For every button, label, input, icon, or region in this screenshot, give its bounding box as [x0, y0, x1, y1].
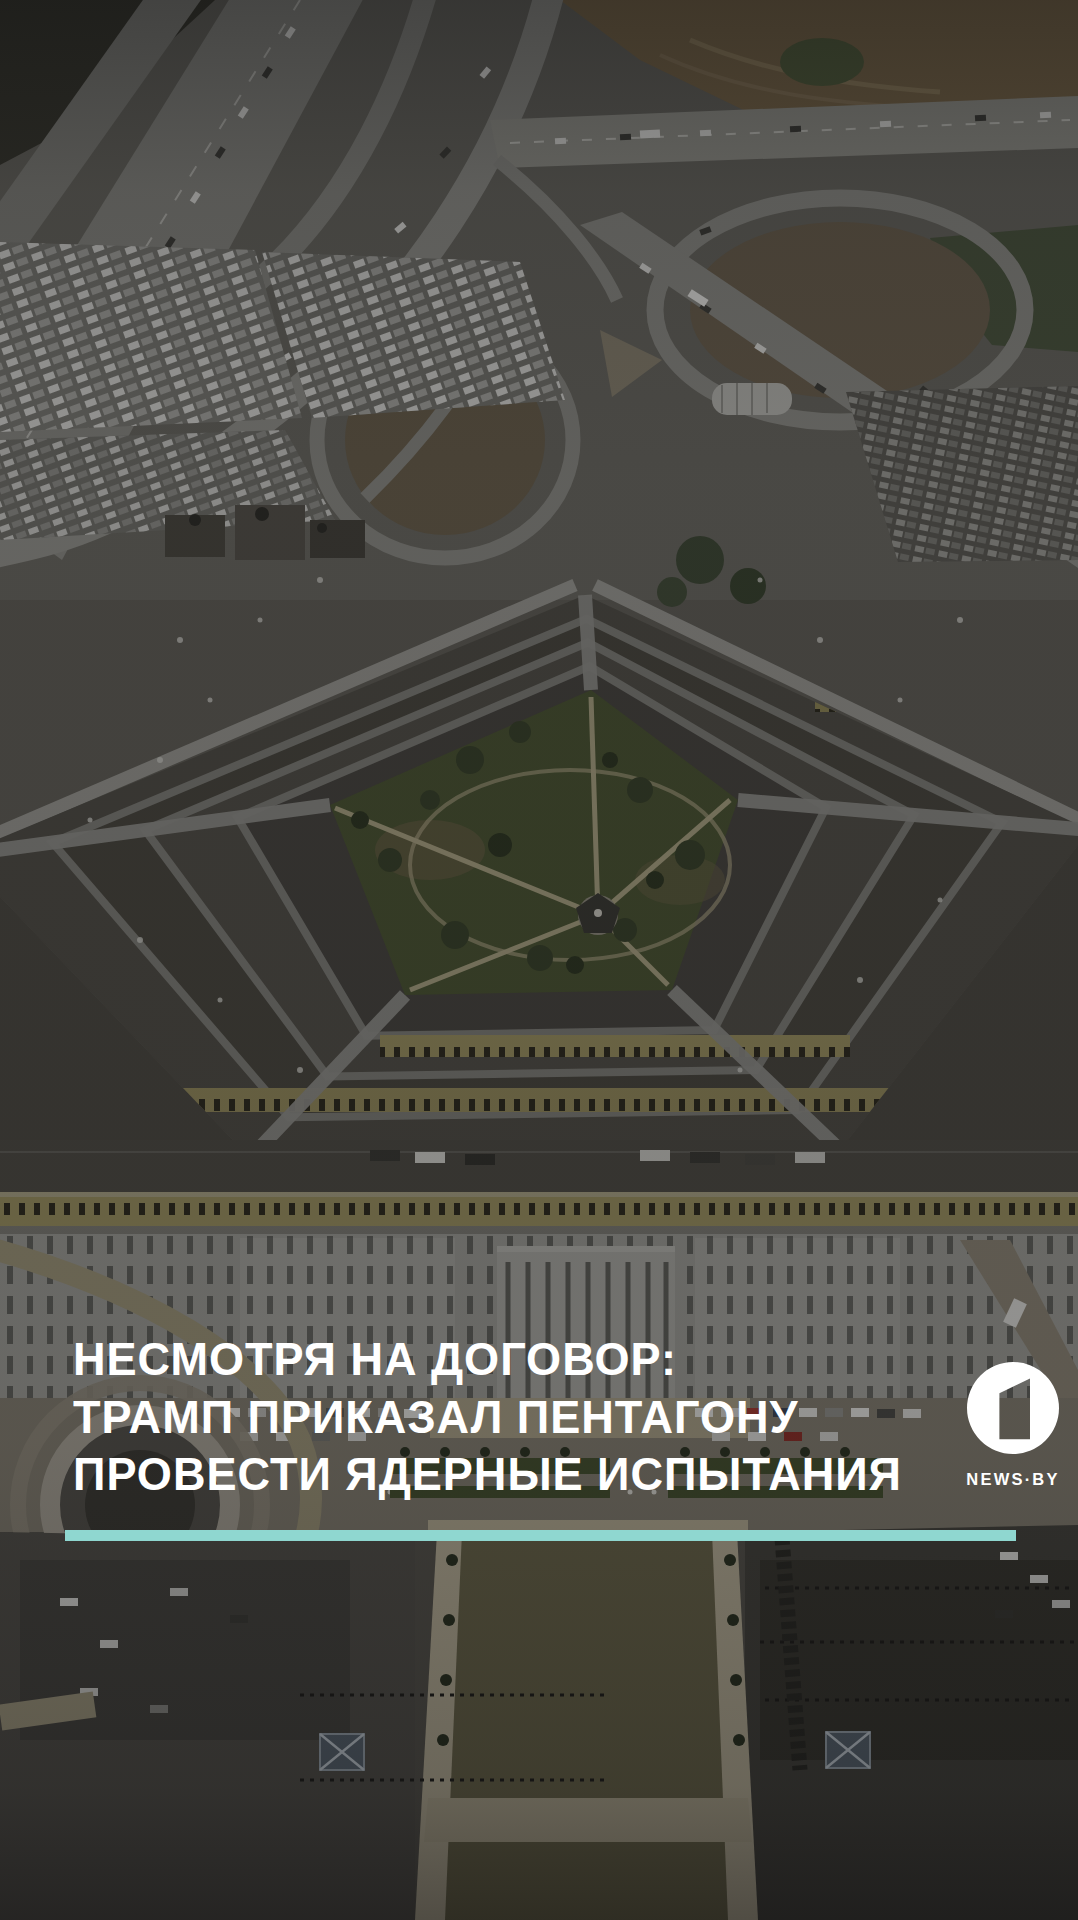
photo-dark-overlay	[0, 0, 1078, 1920]
headline-line-3: ПРОВЕСТИ ЯДЕРНЫЕ ИСПЫТАНИЯ	[73, 1446, 902, 1504]
headline-line-1: НЕСМОТРЯ НА ДОГОВОР:	[73, 1331, 902, 1389]
newsby-wordmark: NEWS·BY	[943, 1470, 1078, 1489]
channel-one-logo-icon	[967, 1362, 1059, 1454]
teal-divider	[65, 1530, 1016, 1541]
news-photo-card: НЕСМОТРЯ НА ДОГОВОР: ТРАМП ПРИКАЗАЛ ПЕНТ…	[0, 0, 1078, 1920]
pentagon-aerial-photo	[0, 0, 1078, 1920]
logo-one-glyph	[967, 1362, 1059, 1454]
headline-line-2: ТРАМП ПРИКАЗАЛ ПЕНТАГОНУ	[73, 1389, 902, 1447]
headline: НЕСМОТРЯ НА ДОГОВОР: ТРАМП ПРИКАЗАЛ ПЕНТ…	[73, 1331, 902, 1504]
